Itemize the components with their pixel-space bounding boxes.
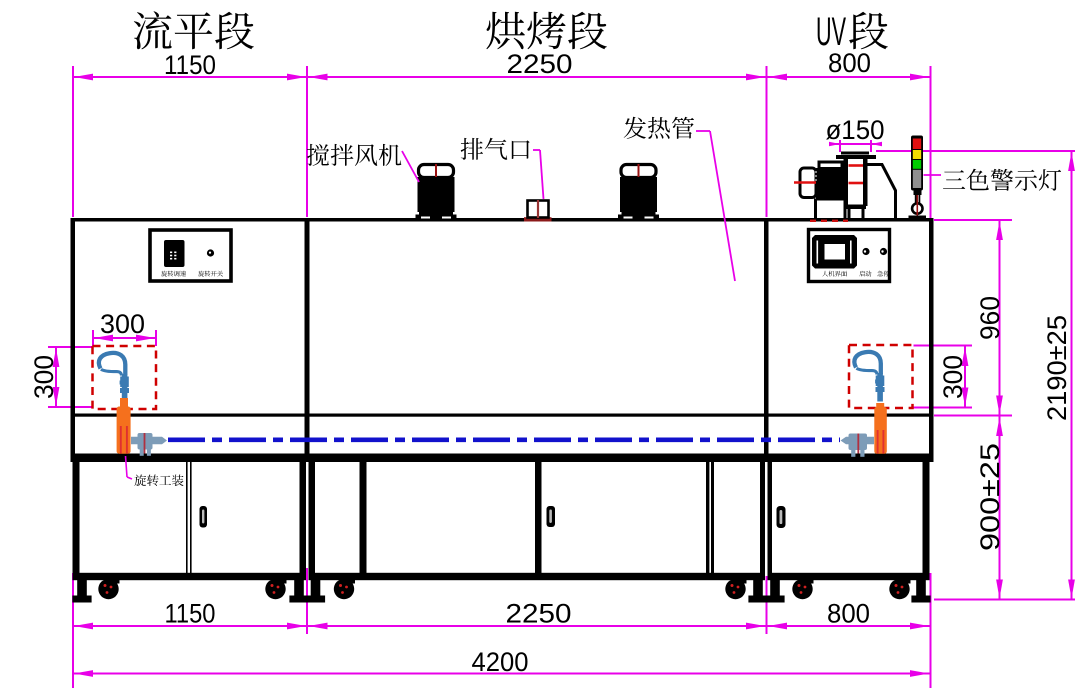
svg-text:1150: 1150 (165, 599, 216, 629)
svg-text:4200: 4200 (472, 647, 529, 677)
svg-text:ø150: ø150 (826, 115, 885, 145)
svg-text:2250: 2250 (507, 49, 573, 79)
svg-text:1150: 1150 (164, 50, 216, 80)
svg-text:300: 300 (100, 309, 145, 339)
svg-text:900±25: 900±25 (975, 443, 1005, 551)
svg-text:960: 960 (975, 296, 1005, 340)
svg-text:300: 300 (938, 355, 968, 399)
svg-text:2190±25: 2190±25 (1042, 315, 1072, 421)
svg-text:300: 300 (29, 355, 59, 399)
svg-text:800: 800 (828, 48, 871, 78)
svg-text:800: 800 (827, 599, 870, 629)
svg-text:2250: 2250 (506, 599, 572, 629)
